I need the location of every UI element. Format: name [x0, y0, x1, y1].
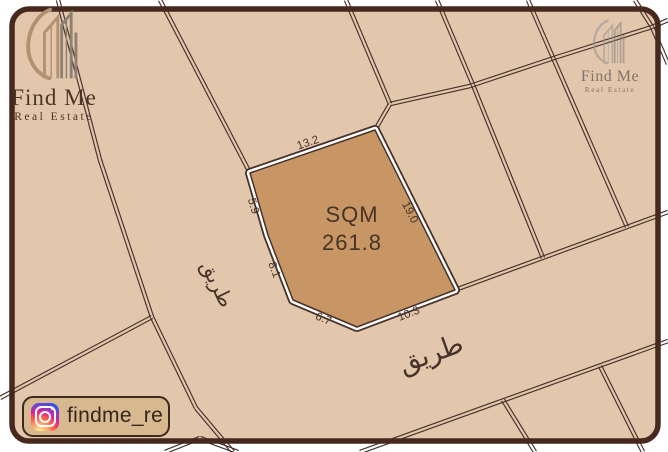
instagram-camera-lens: [39, 411, 51, 423]
brand-watermark: Find Me Real Estate: [566, 16, 654, 95]
brand-tagline: Real Estate: [566, 85, 654, 95]
instagram-badge[interactable]: findme_re: [22, 396, 170, 437]
listing-map-poster: 13.219.010.36.78.15.9SQM261.8طريقطريق Fi…: [0, 0, 668, 452]
instagram-handle: findme_re: [67, 404, 163, 428]
brand-tagline: Real Estate: [2, 110, 106, 124]
instagram-icon: [31, 403, 59, 431]
plot-area-value: 261.8: [322, 230, 382, 255]
brand-name: Find Me: [566, 68, 654, 85]
brand-building-icon: [14, 2, 94, 86]
plot-area-label: SQM: [325, 202, 378, 227]
brand-name: Find Me: [2, 86, 106, 110]
brand-building-icon: [586, 16, 634, 68]
instagram-flash-dot: [51, 407, 54, 410]
brand-logo: Find Me Real Estate: [2, 2, 106, 124]
